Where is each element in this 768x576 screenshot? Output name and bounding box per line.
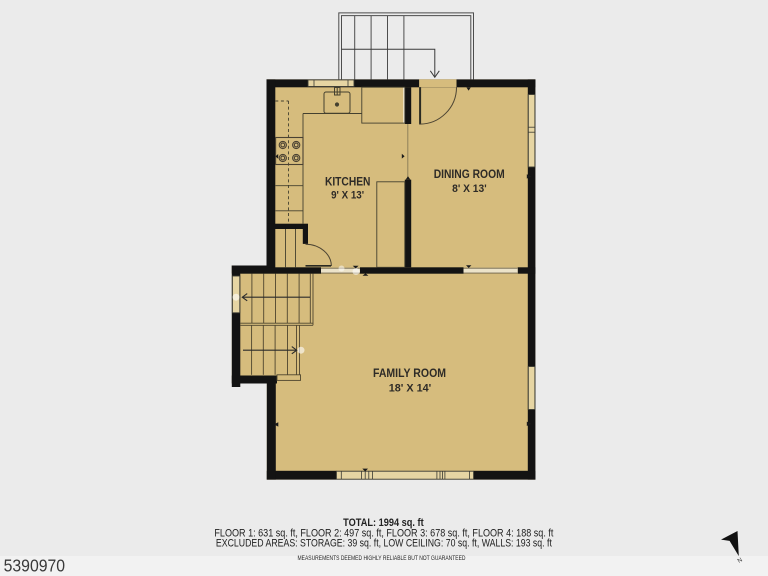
svg-text:FAMILY ROOM: FAMILY ROOM bbox=[373, 368, 446, 380]
svg-text:8' X 13': 8' X 13' bbox=[452, 183, 487, 195]
svg-text:5390970: 5390970 bbox=[4, 556, 66, 576]
svg-text:MEASUREMENTS DEEMED HIGHLY REL: MEASUREMENTS DEEMED HIGHLY RELIABLE BUT … bbox=[298, 556, 467, 562]
svg-text:DINING ROOM: DINING ROOM bbox=[434, 169, 505, 181]
svg-text:EXCLUDED AREAS: STORAGE: 39 sq: EXCLUDED AREAS: STORAGE: 39 sq. ft, LOW … bbox=[216, 537, 552, 549]
svg-text:KITCHEN: KITCHEN bbox=[325, 176, 371, 188]
svg-text:9' X 13': 9' X 13' bbox=[331, 189, 364, 201]
svg-text:18' X 14': 18' X 14' bbox=[389, 383, 432, 395]
